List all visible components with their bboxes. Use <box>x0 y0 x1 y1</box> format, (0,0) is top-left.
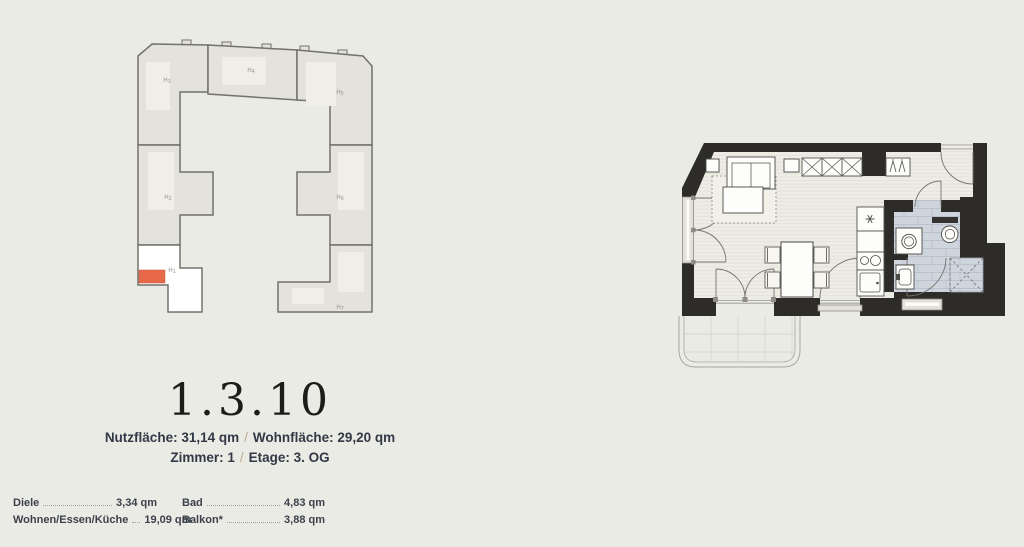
tall-cabinets <box>802 158 862 176</box>
zimmer-value: Zimmer: 1 <box>170 450 235 465</box>
wohnflaeche-value: Wohnfläche: 29,20 qm <box>253 430 395 445</box>
unit-areas-line: Nutzfläche: 31,14 qm/Wohnfläche: 29,20 q… <box>100 428 400 448</box>
side-table-left <box>706 159 719 172</box>
room-name: Balkon* <box>182 514 223 527</box>
room-name: Diele <box>13 497 39 510</box>
highlighted-unit[interactable] <box>139 270 165 283</box>
room-area: 3,34 qm <box>116 497 157 510</box>
wardrobe-hangers <box>886 158 910 176</box>
room-name: Bad <box>182 497 203 510</box>
room-area-table: Diele 3,34 qm Wohnen/Essen/Küche 19,09 q… <box>13 497 513 527</box>
washing-machine <box>896 228 922 254</box>
nutzflaeche-value: Nutzfläche: 31,14 qm <box>105 430 239 445</box>
cooktop <box>857 252 884 270</box>
kitchen-counter <box>857 207 884 296</box>
coffee-table <box>723 187 763 213</box>
room-row-diele: Diele 3,34 qm <box>13 497 157 510</box>
dining-table <box>781 242 813 297</box>
balcony <box>679 316 800 367</box>
window-bathroom <box>902 299 942 310</box>
bathroom-door-opening-floor <box>913 200 941 212</box>
french-window-left <box>683 196 696 265</box>
balcony-tile-grid <box>684 316 795 362</box>
floorplan-page: { "header": { "unit_number": "1.3.10" },… <box>0 0 1024 547</box>
unit-title-block: 1.3.10 Nutzfläche: 31,14 qm/Wohnfläche: … <box>100 378 400 468</box>
unit-rooms-line: Zimmer: 1/Etage: 3. OG <box>100 448 400 468</box>
window-dining <box>818 301 862 312</box>
room-row-bad: Bad 4,83 qm <box>182 497 325 510</box>
room-row-wohnen: Wohnen/Essen/Küche 19,09 qm <box>13 514 157 527</box>
room-row-balkon: Balkon* 3,88 qm <box>182 514 325 527</box>
side-table-right <box>784 159 799 172</box>
toilet <box>942 226 959 243</box>
dotted-leader <box>132 522 140 523</box>
room-name: Wohnen/Essen/Küche <box>13 514 128 527</box>
room-column-1: Diele 3,34 qm Wohnen/Essen/Küche 19,09 q… <box>13 497 157 527</box>
unit-number: 1.3.10 <box>100 378 400 424</box>
separator-slash: / <box>239 430 253 445</box>
separator-slash: / <box>235 450 249 465</box>
site-plan: H3 H4 H5 H2 H6 H1 H7 <box>120 30 380 320</box>
room-column-2: Bad 4,83 qm Balkon* 3,88 qm <box>182 497 325 527</box>
room-area: 3,88 qm <box>284 514 325 527</box>
dotted-leader <box>43 505 112 506</box>
counter-unit <box>857 231 884 252</box>
dotted-leader <box>227 522 280 523</box>
washbasin <box>896 265 914 289</box>
dotted-leader <box>207 505 280 506</box>
entrance-opening-floor <box>941 143 973 152</box>
room-area: 4,83 qm <box>284 497 325 510</box>
etage-value: Etage: 3. OG <box>249 450 330 465</box>
kitchen-sink <box>857 270 884 296</box>
apartment-floor-plan <box>670 130 1020 380</box>
sofa <box>727 157 775 189</box>
